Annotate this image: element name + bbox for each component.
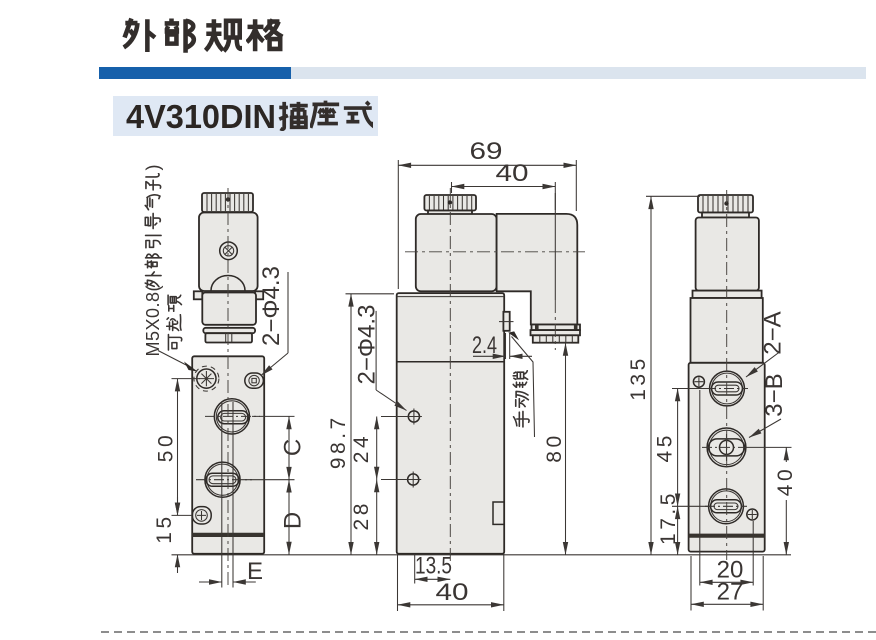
svg-text:E: E <box>247 558 263 585</box>
svg-text:2−Φ4.3: 2−Φ4.3 <box>258 266 285 346</box>
svg-text:15: 15 <box>153 513 176 543</box>
svg-text:27: 27 <box>717 579 744 606</box>
svg-text:45: 45 <box>654 432 677 462</box>
svg-text:40: 40 <box>496 160 529 187</box>
svg-text:13.5: 13.5 <box>415 553 452 580</box>
svg-text:40: 40 <box>774 466 797 496</box>
svg-text:28: 28 <box>350 500 373 530</box>
svg-text:4V310DIN: 4V310DIN <box>126 98 276 135</box>
svg-text:40: 40 <box>436 579 469 606</box>
svg-text:M5X0.8(: M5X0.8( <box>143 285 163 357</box>
svg-text:D: D <box>280 512 307 529</box>
svg-text:80: 80 <box>543 432 566 462</box>
svg-text:2−A: 2−A <box>760 311 787 354</box>
svg-text:50: 50 <box>155 432 178 462</box>
svg-text:): ) <box>143 165 163 171</box>
svg-text:135: 135 <box>627 355 650 401</box>
svg-text:3−B: 3−B <box>761 373 788 416</box>
svg-text:17.5: 17.5 <box>657 490 680 545</box>
svg-text:98.7: 98.7 <box>327 414 350 469</box>
svg-text:24: 24 <box>350 433 373 463</box>
svg-text:C: C <box>280 439 307 456</box>
svg-text:2.4: 2.4 <box>472 332 497 359</box>
